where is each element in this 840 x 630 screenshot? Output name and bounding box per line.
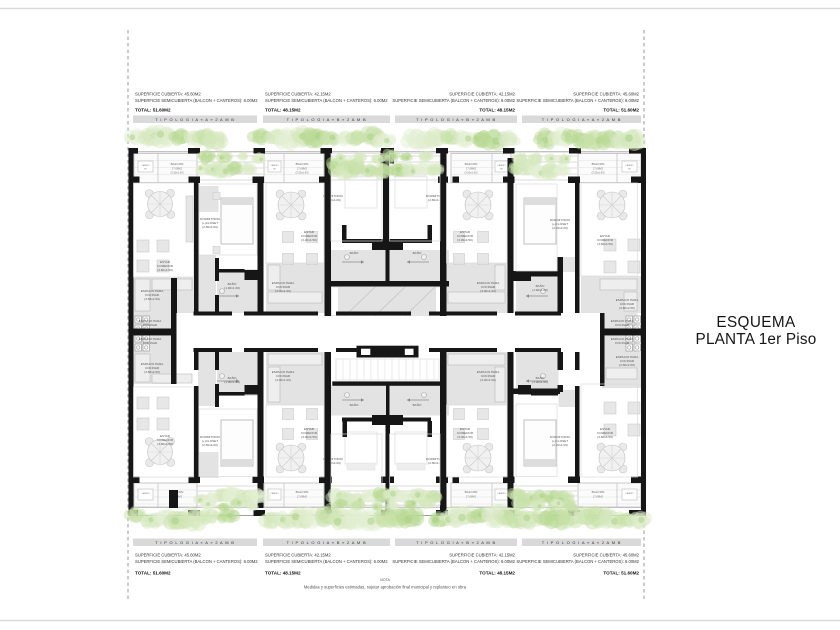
svg-text:17.68M2: 17.68M2 bbox=[466, 167, 477, 171]
svg-text:TOTAL: 51.60M2: TOTAL: 51.60M2 bbox=[135, 571, 171, 576]
svg-text:CANERO: CANERO bbox=[625, 164, 634, 167]
svg-text:(1.90x1.60): (1.90x1.60) bbox=[532, 288, 548, 292]
svg-text:SUPERFICIE SEMICUBIERTA (BALCO: SUPERFICIE SEMICUBIERTA (BALCON + CANTER… bbox=[516, 559, 639, 564]
svg-text:CANERO: CANERO bbox=[270, 492, 279, 495]
svg-text:SUPERFICIE CUBIERTA: 45.60M2: SUPERFICIE CUBIERTA: 45.60M2 bbox=[135, 553, 201, 558]
svg-text:(3.00x1.60): (3.00x1.60) bbox=[275, 378, 291, 382]
svg-text:M2: M2 bbox=[273, 169, 276, 171]
svg-text:TOTAL: 48.15M2: TOTAL: 48.15M2 bbox=[479, 571, 515, 576]
svg-text:(2.80x4.00): (2.80x4.00) bbox=[552, 443, 568, 447]
svg-text:BAÑO: BAÑO bbox=[413, 250, 422, 255]
svg-text:TOTAL: 51.60M2: TOTAL: 51.60M2 bbox=[603, 108, 639, 113]
svg-text:Medidas y superficies estimada: Medidas y superficies estimadas, sujetar… bbox=[304, 585, 467, 590]
svg-text:SUPERFICIE SEMICUBIERTA (BALCO: SUPERFICIE SEMICUBIERTA (BALCON + CANTER… bbox=[135, 98, 258, 103]
svg-text:COCINAR: COCINAR bbox=[615, 341, 630, 345]
svg-text:SUPERFICIE CUBIERTA: 42.15M2: SUPERFICIE CUBIERTA: 42.15M2 bbox=[265, 553, 331, 558]
svg-text:(3.00x4.50): (3.00x4.50) bbox=[457, 435, 473, 439]
svg-text:BALCON: BALCON bbox=[592, 490, 605, 494]
svg-text:TOTAL: 51.60M2: TOTAL: 51.60M2 bbox=[603, 571, 639, 576]
svg-text:BALCON: BALCON bbox=[592, 162, 605, 166]
svg-text:CANERO: CANERO bbox=[625, 492, 634, 495]
svg-text:SUPERFICIE CUBIERTA: 42.15M2: SUPERFICIE CUBIERTA: 42.15M2 bbox=[449, 553, 515, 558]
svg-text:T I P O L O G I A « B » 2: T I P O L O G I A « B » 2 A M B bbox=[416, 117, 496, 122]
svg-text:T I P O L O G I A « A » 2: T I P O L O G I A « A » 2 A M B bbox=[542, 117, 621, 122]
svg-text:(2.80x2.00): (2.80x2.00) bbox=[619, 306, 635, 310]
svg-text:(3.50x1.60): (3.50x1.60) bbox=[170, 171, 183, 175]
svg-text:(2.80x2.00): (2.80x2.00) bbox=[619, 363, 635, 367]
svg-text:(3.00x4.50): (3.00x4.50) bbox=[301, 238, 317, 242]
svg-text:CANERO: CANERO bbox=[141, 492, 150, 495]
svg-text:CANERO: CANERO bbox=[141, 164, 150, 167]
svg-text:BALCON: BALCON bbox=[171, 162, 184, 166]
svg-text:ESQUEMA: ESQUEMA bbox=[716, 314, 796, 331]
svg-text:T I P O L O G I A « B » 2: T I P O L O G I A « B » 2 A M B bbox=[287, 540, 367, 545]
svg-text:T I P O L O G I A « B » 2: T I P O L O G I A « B » 2 A M B bbox=[416, 540, 496, 545]
svg-text:T I P O L O G I A « B » 2: T I P O L O G I A « B » 2 A M B bbox=[287, 117, 367, 122]
svg-text:(3.00x1.60): (3.00x1.60) bbox=[275, 289, 291, 293]
svg-text:(1.90x1.60): (1.90x1.60) bbox=[224, 286, 240, 290]
svg-text:SUPERFICIE CUBIERTA: 45.60M2: SUPERFICIE CUBIERTA: 45.60M2 bbox=[135, 92, 201, 97]
svg-text:CANERO: CANERO bbox=[270, 164, 279, 167]
svg-text:(2.80x4.00): (2.80x4.00) bbox=[202, 225, 218, 229]
svg-text:SUPERFICIE CUBIERTA: 45.60M2: SUPERFICIE CUBIERTA: 45.60M2 bbox=[573, 553, 639, 558]
svg-text:CANERO: CANERO bbox=[497, 492, 506, 495]
svg-text:TOTAL: 48.15M2: TOTAL: 48.15M2 bbox=[265, 571, 301, 576]
svg-text:17.68M2: 17.68M2 bbox=[466, 495, 477, 499]
svg-text:BALCON: BALCON bbox=[465, 490, 478, 494]
svg-text:BALCON: BALCON bbox=[465, 162, 478, 166]
svg-text:SUPERFICIE CUBIERTA: 45.60M2: SUPERFICIE CUBIERTA: 45.60M2 bbox=[573, 92, 639, 97]
svg-text:SUPERFICIE CUBIERTA: 42.15M2: SUPERFICIE CUBIERTA: 42.15M2 bbox=[449, 92, 515, 97]
svg-text:(3.00x1.60): (3.00x1.60) bbox=[480, 289, 496, 293]
svg-text:COCINAR: COCINAR bbox=[143, 323, 158, 327]
svg-text:BALCON: BALCON bbox=[296, 162, 309, 166]
svg-text:(3.80x2.00): (3.80x2.00) bbox=[144, 370, 160, 374]
svg-text:SUPERFICIE SEMICUBIERTA (BALCO: SUPERFICIE SEMICUBIERTA (BALCON + CANTER… bbox=[135, 559, 258, 564]
svg-text:SUPERFICIE SEMICUBIERTA (BALCO: SUPERFICIE SEMICUBIERTA (BALCON + CANTER… bbox=[392, 559, 515, 564]
svg-text:SUPERFICIE SEMICUBIERTA (BALCO: SUPERFICIE SEMICUBIERTA (BALCON + CANTER… bbox=[392, 98, 515, 103]
svg-text:(3.80x4.50): (3.80x4.50) bbox=[597, 242, 613, 246]
svg-text:(3.00x4.50): (3.00x4.50) bbox=[301, 435, 317, 439]
svg-text:(2.80x4.00): (2.80x4.00) bbox=[552, 226, 568, 230]
svg-text:(1.90x1.60): (1.90x1.60) bbox=[224, 380, 240, 384]
svg-text:(3.80x4.50): (3.80x4.50) bbox=[157, 268, 173, 272]
svg-text:(3.80x2.00): (3.80x2.00) bbox=[144, 297, 160, 301]
svg-text:17.68M2: 17.68M2 bbox=[593, 167, 604, 171]
svg-text:COCINAR: COCINAR bbox=[615, 323, 630, 327]
svg-text:(3.50x1.60): (3.50x1.60) bbox=[295, 171, 308, 175]
svg-text:17.68M2: 17.68M2 bbox=[172, 167, 183, 171]
svg-text:(1.90x1.60): (1.90x1.60) bbox=[532, 380, 548, 384]
svg-text:17.68M2: 17.68M2 bbox=[593, 495, 604, 499]
svg-text:M2: M2 bbox=[500, 169, 503, 171]
svg-text:T I P O L O G I A « A » 2: T I P O L O G I A « A » 2 A M B bbox=[155, 540, 234, 545]
svg-text:(3.80x4.50): (3.80x4.50) bbox=[597, 435, 613, 439]
svg-text:BAÑO: BAÑO bbox=[413, 402, 422, 407]
svg-text:CANERO: CANERO bbox=[497, 164, 506, 167]
svg-text:TOTAL: 48.15M2: TOTAL: 48.15M2 bbox=[479, 108, 515, 113]
svg-text:SUPERFICIE SEMICUBIERTA (BALCO: SUPERFICIE SEMICUBIERTA (BALCON + CANTER… bbox=[265, 98, 388, 103]
svg-text:(3.00x4.50): (3.00x4.50) bbox=[457, 238, 473, 242]
svg-text:COCINAR: COCINAR bbox=[143, 341, 158, 345]
svg-text:(3.50x1.60): (3.50x1.60) bbox=[464, 171, 477, 175]
svg-text:17.68M2: 17.68M2 bbox=[297, 495, 308, 499]
svg-text:TOTAL: 48.15M2: TOTAL: 48.15M2 bbox=[265, 108, 301, 113]
svg-text:SUPERFICIE CUBIERTA: 42.15M2: SUPERFICIE CUBIERTA: 42.15M2 bbox=[265, 92, 331, 97]
svg-text:(2.80x4.00): (2.80x4.00) bbox=[202, 443, 218, 447]
svg-text:(3.00x1.60): (3.00x1.60) bbox=[480, 378, 496, 382]
svg-text:M2: M2 bbox=[144, 169, 147, 171]
svg-text:17.68M2: 17.68M2 bbox=[297, 167, 308, 171]
svg-text:T I P O L O G I A « A » 2: T I P O L O G I A « A » 2 A M B bbox=[155, 117, 234, 122]
svg-text:BAÑO: BAÑO bbox=[350, 402, 359, 407]
svg-text:BALCON: BALCON bbox=[296, 490, 309, 494]
svg-text:(3.50x1.60): (3.50x1.60) bbox=[591, 171, 604, 175]
svg-text:SUPERFICIE SEMICUBIERTA (BALCO: SUPERFICIE SEMICUBIERTA (BALCON + CANTER… bbox=[516, 98, 639, 103]
svg-text:T I P O L O G I A « A » 2: T I P O L O G I A « A » 2 A M B bbox=[542, 540, 621, 545]
svg-text:SUPERFICIE SEMICUBIERTA (BALCO: SUPERFICIE SEMICUBIERTA (BALCON + CANTER… bbox=[265, 559, 388, 564]
svg-text:NOTA: NOTA bbox=[380, 578, 390, 582]
svg-text:M2: M2 bbox=[628, 169, 631, 171]
svg-text:PLANTA 1er Piso: PLANTA 1er Piso bbox=[696, 331, 817, 348]
svg-text:TOTAL: 51.60M2: TOTAL: 51.60M2 bbox=[135, 108, 171, 113]
svg-text:(3.80x4.50): (3.80x4.50) bbox=[157, 442, 173, 446]
svg-text:BAÑO: BAÑO bbox=[350, 250, 359, 255]
